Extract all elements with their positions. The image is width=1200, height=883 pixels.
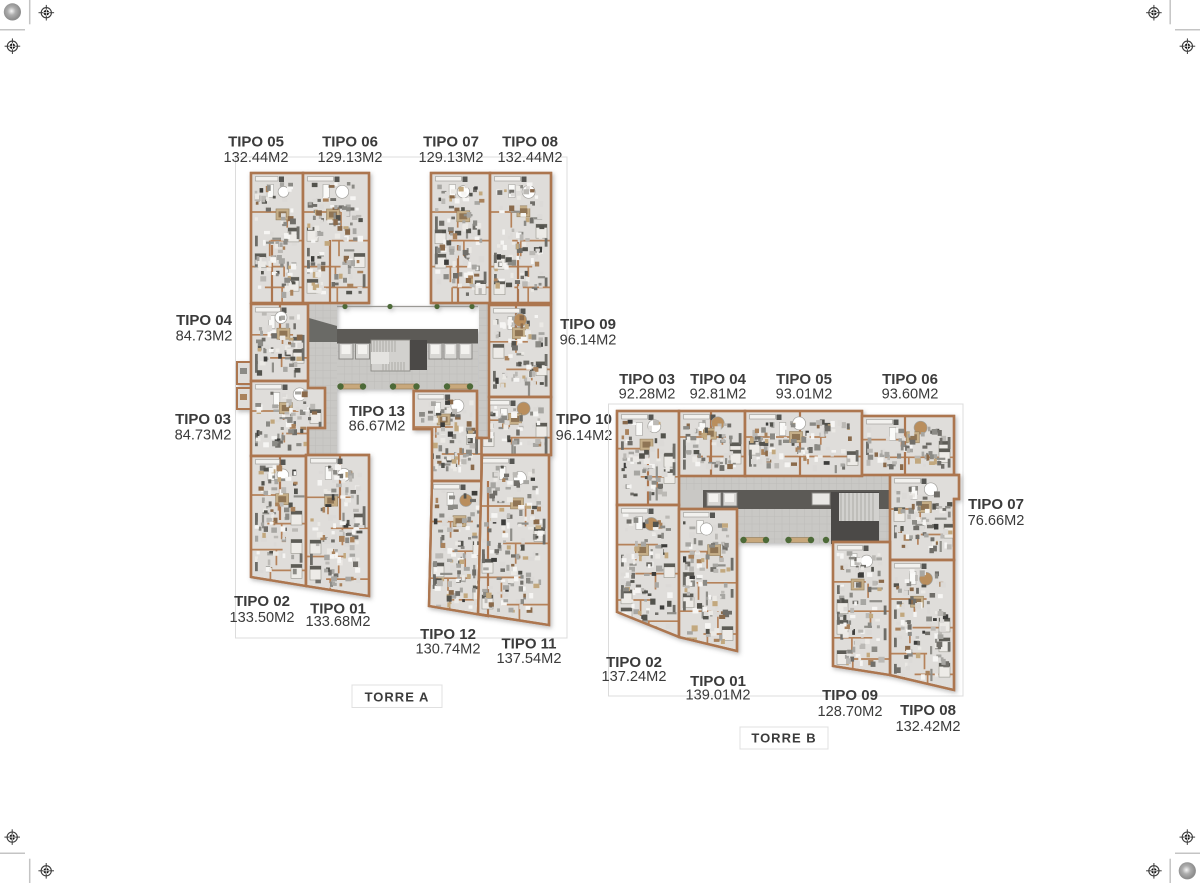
svg-text:TIPO 10: TIPO 10 bbox=[556, 411, 612, 428]
svg-text:132.42M2: 132.42M2 bbox=[896, 719, 961, 735]
svg-text:96.14M2: 96.14M2 bbox=[556, 428, 613, 444]
svg-text:TIPO 06: TIPO 06 bbox=[322, 134, 378, 151]
svg-text:86.67M2: 86.67M2 bbox=[349, 419, 406, 435]
svg-text:TIPO 05: TIPO 05 bbox=[228, 134, 284, 151]
svg-text:96.14M2: 96.14M2 bbox=[560, 333, 617, 349]
svg-text:TIPO 13: TIPO 13 bbox=[349, 403, 405, 420]
svg-text:TIPO 08: TIPO 08 bbox=[900, 702, 956, 719]
svg-text:93.60M2: 93.60M2 bbox=[882, 387, 939, 403]
svg-text:TIPO 05: TIPO 05 bbox=[776, 371, 832, 388]
svg-text:137.54M2: 137.54M2 bbox=[497, 651, 562, 667]
svg-text:TIPO 11: TIPO 11 bbox=[501, 636, 556, 653]
svg-text:139.01M2: 139.01M2 bbox=[686, 688, 751, 704]
svg-text:TIPO 06: TIPO 06 bbox=[882, 371, 938, 388]
svg-text:133.50M2: 133.50M2 bbox=[230, 610, 295, 626]
svg-text:TIPO 12: TIPO 12 bbox=[420, 626, 476, 643]
svg-text:92.28M2: 92.28M2 bbox=[619, 387, 676, 403]
svg-text:92.81M2: 92.81M2 bbox=[690, 387, 747, 403]
svg-text:TIPO 03: TIPO 03 bbox=[175, 411, 231, 428]
svg-text:TORRE B: TORRE B bbox=[751, 731, 816, 746]
svg-text:TIPO 08: TIPO 08 bbox=[502, 134, 558, 151]
svg-text:128.70M2: 128.70M2 bbox=[818, 704, 883, 720]
svg-text:132.44M2: 132.44M2 bbox=[224, 150, 289, 166]
svg-text:132.44M2: 132.44M2 bbox=[498, 150, 563, 166]
svg-text:TIPO 09: TIPO 09 bbox=[822, 687, 878, 704]
svg-text:TIPO 04: TIPO 04 bbox=[176, 312, 233, 329]
svg-text:129.13M2: 129.13M2 bbox=[318, 150, 383, 166]
svg-text:TIPO 07: TIPO 07 bbox=[968, 496, 1024, 513]
svg-text:93.01M2: 93.01M2 bbox=[776, 387, 833, 403]
svg-text:TIPO 07: TIPO 07 bbox=[423, 134, 479, 151]
svg-text:TIPO 04: TIPO 04 bbox=[690, 371, 747, 388]
svg-text:84.73M2: 84.73M2 bbox=[175, 428, 232, 444]
svg-text:130.74M2: 130.74M2 bbox=[416, 642, 481, 658]
svg-text:TORRE A: TORRE A bbox=[365, 690, 430, 705]
svg-text:133.68M2: 133.68M2 bbox=[306, 614, 371, 630]
svg-text:TIPO 02: TIPO 02 bbox=[234, 593, 290, 610]
svg-text:137.24M2: 137.24M2 bbox=[602, 669, 667, 685]
svg-text:76.66M2: 76.66M2 bbox=[968, 513, 1025, 529]
svg-text:84.73M2: 84.73M2 bbox=[176, 329, 233, 345]
svg-text:TIPO 09: TIPO 09 bbox=[560, 316, 616, 333]
svg-text:129.13M2: 129.13M2 bbox=[419, 150, 484, 166]
svg-text:TIPO 03: TIPO 03 bbox=[619, 371, 675, 388]
